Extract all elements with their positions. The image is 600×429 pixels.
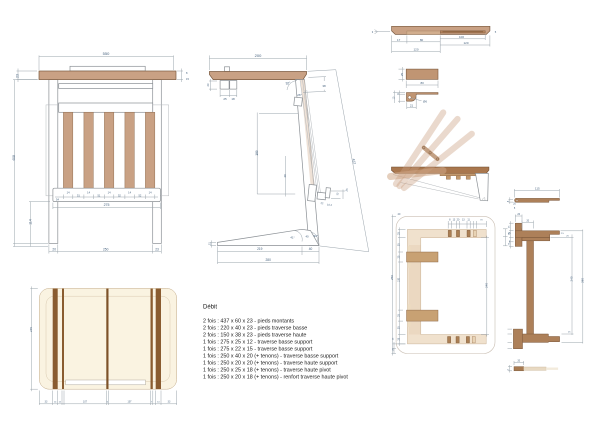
svg-text:107: 107 — [128, 401, 133, 404]
svg-text:Débit: Débit — [203, 305, 217, 311]
svg-text:1 fois : 250 x 40 x 20 (+ ten: 1 fois : 250 x 40 x 20 (+ tenons) - trav… — [203, 354, 339, 360]
svg-text:1 fois : 250 x 25 x 18 (+ ten: 1 fois : 250 x 25 x 18 (+ tenons) - trav… — [203, 368, 331, 374]
svg-text:10.2: 10.2 — [327, 203, 333, 208]
svg-text:17: 17 — [397, 38, 401, 42]
svg-text:200: 200 — [255, 53, 262, 58]
svg-text:1 fois : 250 x 20 x 18 (+ ten: 1 fois : 250 x 20 x 18 (+ tenons) - renf… — [203, 375, 348, 381]
svg-text:25: 25 — [400, 73, 404, 77]
svg-text:189: 189 — [255, 150, 259, 156]
svg-text:23: 23 — [15, 74, 19, 78]
svg-text:240: 240 — [570, 276, 574, 281]
svg-text:280: 280 — [266, 258, 272, 262]
svg-text:107: 107 — [83, 401, 88, 404]
svg-text:120: 120 — [463, 41, 468, 45]
svg-text:240: 240 — [484, 283, 488, 288]
svg-text:114: 114 — [28, 219, 32, 225]
svg-text:100: 100 — [398, 277, 401, 282]
svg-text:219: 219 — [257, 247, 263, 251]
svg-text:550: 550 — [103, 51, 110, 56]
svg-text:115: 115 — [535, 187, 540, 191]
svg-text:250: 250 — [390, 275, 394, 280]
svg-text:1 fois : 275 x 25 x 12 - trave: 1 fois : 275 x 25 x 12 - traverse basse … — [203, 340, 313, 346]
svg-text:25: 25 — [223, 97, 227, 101]
svg-text:26°: 26° — [297, 93, 302, 97]
svg-text:40: 40 — [305, 235, 309, 239]
svg-text:Ø6: Ø6 — [423, 100, 427, 104]
svg-text:40: 40 — [309, 247, 313, 251]
svg-text:100: 100 — [459, 35, 464, 39]
svg-text:m: m — [481, 218, 483, 221]
svg-text:80: 80 — [420, 38, 424, 42]
svg-text:1 fois : 250 x 20 x 20 (+ ten: 1 fois : 250 x 20 x 20 (+ tenons) - trav… — [203, 361, 338, 367]
svg-text:245: 245 — [29, 327, 33, 332]
svg-text:92°: 92° — [286, 82, 292, 86]
svg-text:275: 275 — [104, 203, 110, 207]
svg-text:120: 120 — [413, 47, 418, 51]
svg-text:21: 21 — [410, 103, 414, 107]
svg-text:2 fois : 220 x 40 x 23 - pieds: 2 fois : 220 x 40 x 23 - pieds traverse … — [203, 326, 307, 332]
svg-text:2 fois : 437 x 60 x 23 - pieds: 2 fois : 437 x 60 x 23 - pieds montants — [203, 319, 294, 325]
svg-text:408: 408 — [12, 155, 16, 161]
svg-text:38: 38 — [322, 84, 326, 88]
svg-text:20: 20 — [52, 248, 56, 252]
svg-text:90°: 90° — [314, 234, 318, 238]
svg-text:250: 250 — [103, 248, 109, 252]
svg-text:1 fois : 275 x 22 x 15 - trave: 1 fois : 275 x 22 x 15 - traverse basse … — [203, 347, 313, 353]
svg-text:41°: 41° — [290, 236, 294, 240]
svg-text:40: 40 — [283, 174, 287, 178]
svg-text:280: 280 — [580, 278, 584, 283]
svg-text:80: 80 — [421, 81, 425, 85]
svg-text:2 fois : 150 x 38 x 23 - pieds: 2 fois : 150 x 38 x 23 - pieds traverse … — [203, 333, 306, 339]
svg-text:18: 18 — [231, 97, 235, 101]
svg-text:23: 23 — [155, 248, 159, 252]
